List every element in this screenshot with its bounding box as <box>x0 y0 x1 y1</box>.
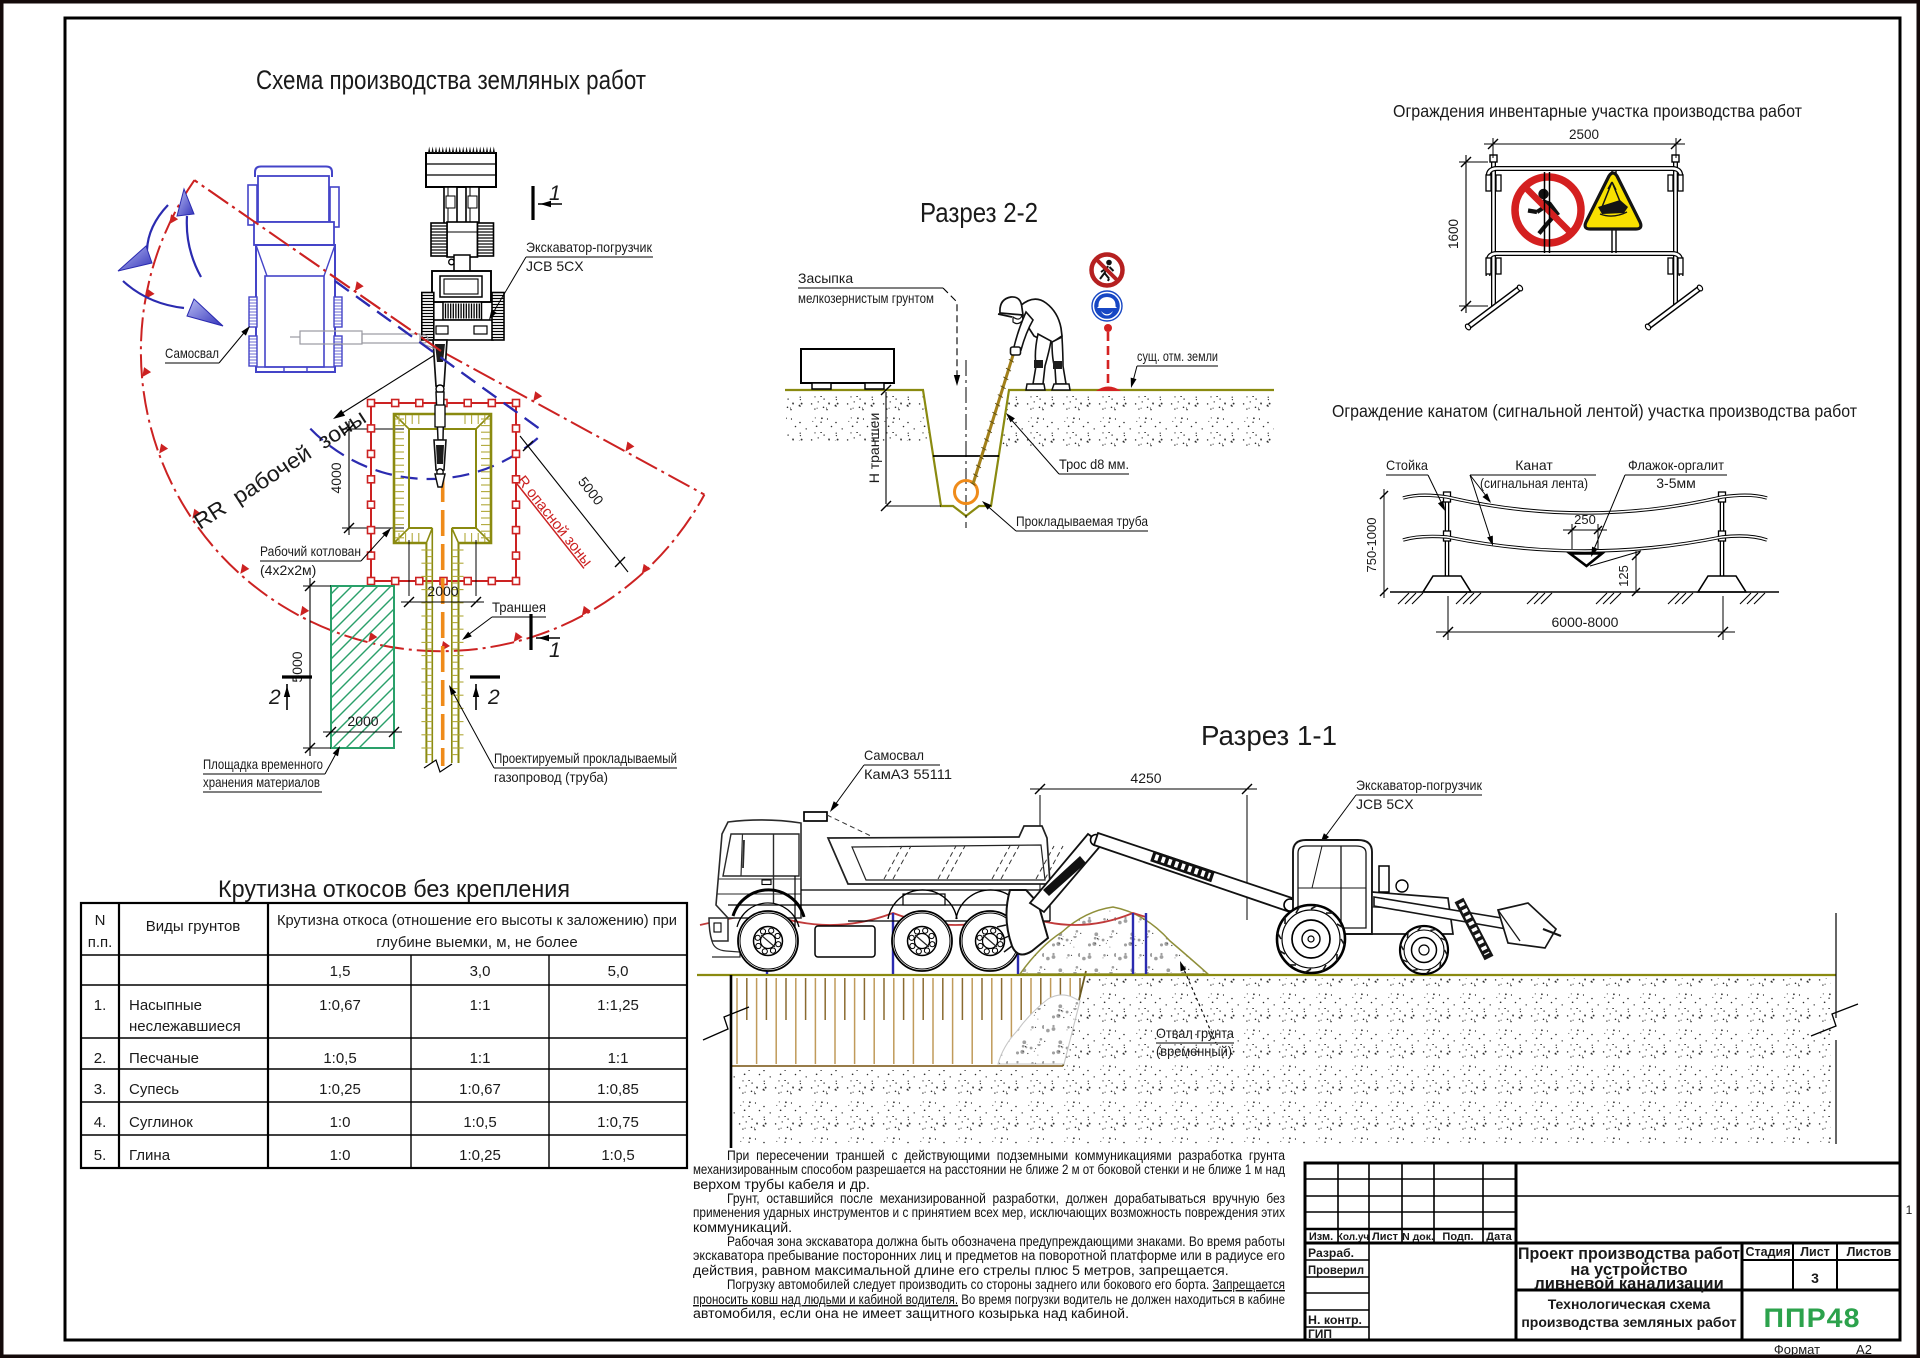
svg-text:Отвал грунта: Отвал грунта <box>1156 1025 1234 1041</box>
svg-text:Стойка: Стойка <box>1386 457 1428 473</box>
svg-text:1:0: 1:0 <box>330 1114 351 1131</box>
svg-text:Погрузку автомобилей следует п: Погрузку автомобилей следует производить… <box>727 1277 1285 1293</box>
svg-text:Н траншеи: Н траншеи <box>866 413 882 484</box>
svg-text:Суглинок: Суглинок <box>129 1114 193 1131</box>
svg-text:Самосвал: Самосвал <box>165 345 219 361</box>
svg-text:1:0,5: 1:0,5 <box>323 1050 356 1067</box>
svg-text:1:0,67: 1:0,67 <box>459 1081 501 1098</box>
svg-text:производства земляных работ: производства земляных работ <box>1521 1314 1736 1330</box>
svg-text:1:0,5: 1:0,5 <box>463 1114 496 1131</box>
svg-text:1:0,5: 1:0,5 <box>601 1147 634 1164</box>
svg-text:1: 1 <box>549 639 561 662</box>
svg-text:Разрез 2-2: Разрез 2-2 <box>920 197 1038 228</box>
svg-text:А2: А2 <box>1856 1342 1872 1357</box>
svg-text:1:1,25: 1:1,25 <box>597 997 639 1014</box>
svg-text:Изм.: Изм. <box>1309 1231 1333 1243</box>
svg-text:Листов: Листов <box>1847 1245 1892 1259</box>
svg-text:JCB 5CX: JCB 5CX <box>526 258 584 274</box>
svg-text:Канат: Канат <box>1515 457 1553 473</box>
svg-text:Виды грунтов: Виды грунтов <box>146 918 241 935</box>
svg-text:Технологическая схема: Технологическая схема <box>1548 1296 1711 1312</box>
svg-text:Схема производства земляных ра: Схема производства земляных работ <box>256 65 646 95</box>
svg-text:Насыпные: Насыпные <box>129 997 202 1014</box>
svg-text:3-5мм: 3-5мм <box>1656 475 1695 491</box>
svg-text:2.: 2. <box>94 1050 107 1067</box>
svg-text:ГИП: ГИП <box>1308 1327 1332 1341</box>
svg-text:Дата: Дата <box>1486 1231 1512 1243</box>
svg-text:Проектируемый прокладываемый: Проектируемый прокладываемый <box>494 750 677 766</box>
svg-text:Стадия: Стадия <box>1745 1245 1790 1259</box>
svg-text:газопровод (труба): газопровод (труба) <box>494 769 608 785</box>
svg-text:неслежавшиеся: неслежавшиеся <box>129 1018 241 1035</box>
svg-text:1,5: 1,5 <box>330 963 351 980</box>
svg-text:N: N <box>95 912 106 929</box>
svg-text:Траншея: Траншея <box>492 599 546 615</box>
svg-text:1:0: 1:0 <box>330 1147 351 1164</box>
svg-text:Рабочий котлован: Рабочий котлован <box>260 543 361 559</box>
svg-text:2000: 2000 <box>347 713 378 729</box>
svg-text:Самосвал: Самосвал <box>864 747 924 763</box>
svg-text:750-1000: 750-1000 <box>1364 518 1379 573</box>
svg-text:4000: 4000 <box>328 462 344 493</box>
svg-text:Лист: Лист <box>1372 1231 1399 1243</box>
svg-text:Проверил: Проверил <box>1308 1263 1364 1277</box>
svg-text:Глина: Глина <box>129 1147 171 1164</box>
svg-text:JCB 5CX: JCB 5CX <box>1356 796 1414 812</box>
svg-text:Экскаватор-погрузчик: Экскаватор-погрузчик <box>526 239 653 255</box>
svg-text:3,0: 3,0 <box>470 963 491 980</box>
svg-text:КамАЗ 55111: КамАЗ 55111 <box>864 766 952 782</box>
svg-text:3.: 3. <box>94 1081 107 1098</box>
svg-text:ливневой канализации: ливневой канализации <box>1534 1275 1723 1293</box>
svg-text:Н. контр.: Н. контр. <box>1308 1313 1362 1327</box>
svg-text:1:0,75: 1:0,75 <box>597 1114 639 1131</box>
svg-text:ППР48: ППР48 <box>1764 1303 1861 1333</box>
svg-text:3: 3 <box>1811 1270 1819 1286</box>
svg-text:Флажок-оргалит: Флажок-оргалит <box>1628 457 1725 473</box>
svg-text:4250: 4250 <box>1130 770 1161 786</box>
svg-text:2000: 2000 <box>427 583 458 599</box>
svg-text:Разраб.: Разраб. <box>1308 1246 1354 1260</box>
svg-text:1:0,67: 1:0,67 <box>319 997 361 1014</box>
svg-text:(4х2х2м): (4х2х2м) <box>260 562 316 578</box>
svg-text:(сигнальная лента): (сигнальная лента) <box>1480 475 1588 491</box>
svg-text:1:0,85: 1:0,85 <box>597 1081 639 1098</box>
svg-text:Лист: Лист <box>1800 1245 1830 1259</box>
svg-text:(временный): (временный) <box>1156 1043 1232 1059</box>
svg-text:механизированным способом разр: механизированным способом разрешается на… <box>693 1162 1286 1178</box>
svg-text:глубине выемки, м, не более: глубине выемки, м, не более <box>376 934 578 951</box>
svg-text:1:1: 1:1 <box>608 1050 629 1067</box>
svg-text:5,0: 5,0 <box>608 963 629 980</box>
svg-text:250: 250 <box>1574 512 1596 527</box>
svg-text:мелкозернистым грунтом: мелкозернистым грунтом <box>798 290 934 306</box>
svg-text:Засыпка: Засыпка <box>798 270 853 286</box>
svg-text:2: 2 <box>268 686 281 709</box>
svg-text:Трос d8 мм.: Трос d8 мм. <box>1059 456 1129 472</box>
svg-text:хранения материалов: хранения материалов <box>203 774 320 790</box>
svg-text:Разрез 1-1: Разрез 1-1 <box>1201 720 1337 751</box>
svg-text:4.: 4. <box>94 1114 107 1131</box>
svg-text:экскаватора пребывание посторо: экскаватора пребывание посторонних лиц и… <box>693 1248 1285 1264</box>
svg-text:5.: 5. <box>94 1147 107 1164</box>
svg-text:Площадка временного: Площадка временного <box>203 756 323 772</box>
svg-text:Ограждение канатом (сигнальной: Ограждение канатом (сигнальной лентой) у… <box>1332 401 1857 421</box>
svg-text:6000-8000: 6000-8000 <box>1552 614 1619 630</box>
svg-text:Песчаные: Песчаные <box>129 1050 199 1067</box>
svg-text:N док.: N док. <box>1402 1231 1434 1243</box>
svg-text:1:1: 1:1 <box>470 997 491 1014</box>
svg-text:Прокладываемая труба: Прокладываемая труба <box>1016 513 1148 529</box>
svg-text:1:0,25: 1:0,25 <box>459 1147 501 1164</box>
svg-text:1: 1 <box>549 182 561 205</box>
svg-text:1:0,25: 1:0,25 <box>319 1081 361 1098</box>
svg-text:2: 2 <box>487 686 500 709</box>
svg-text:п.п.: п.п. <box>88 934 113 951</box>
svg-text:2500: 2500 <box>1569 127 1599 142</box>
svg-text:автомобиля, если она не имеет: автомобиля, если она не имеет защитного … <box>693 1306 1129 1322</box>
svg-text:1.: 1. <box>94 997 107 1014</box>
svg-text:1:1: 1:1 <box>470 1050 491 1067</box>
svg-text:сущ. отм. земли: сущ. отм. земли <box>1137 348 1218 364</box>
svg-text:Крутизна откосов без крепления: Крутизна откосов без крепления <box>218 876 570 903</box>
svg-text:Крутизна откоса (отношение его: Крутизна откоса (отношение его высоты к … <box>277 912 677 929</box>
svg-text:Экскаватор-погрузчик: Экскаватор-погрузчик <box>1356 777 1483 793</box>
svg-text:Формат: Формат <box>1774 1342 1820 1357</box>
svg-text:125: 125 <box>1616 565 1631 587</box>
svg-text:1600: 1600 <box>1446 219 1461 249</box>
svg-text:Кол.уч: Кол.уч <box>1337 1232 1370 1243</box>
svg-text:Подп.: Подп. <box>1442 1231 1473 1243</box>
svg-text:Супесь: Супесь <box>129 1081 179 1098</box>
svg-text:1: 1 <box>1906 1203 1913 1217</box>
svg-text:применения ударных инструменто: применения ударных инструментов и с прин… <box>693 1205 1285 1221</box>
svg-text:Ограждения инвентарные участка: Ограждения инвентарные участка производс… <box>1393 101 1802 121</box>
